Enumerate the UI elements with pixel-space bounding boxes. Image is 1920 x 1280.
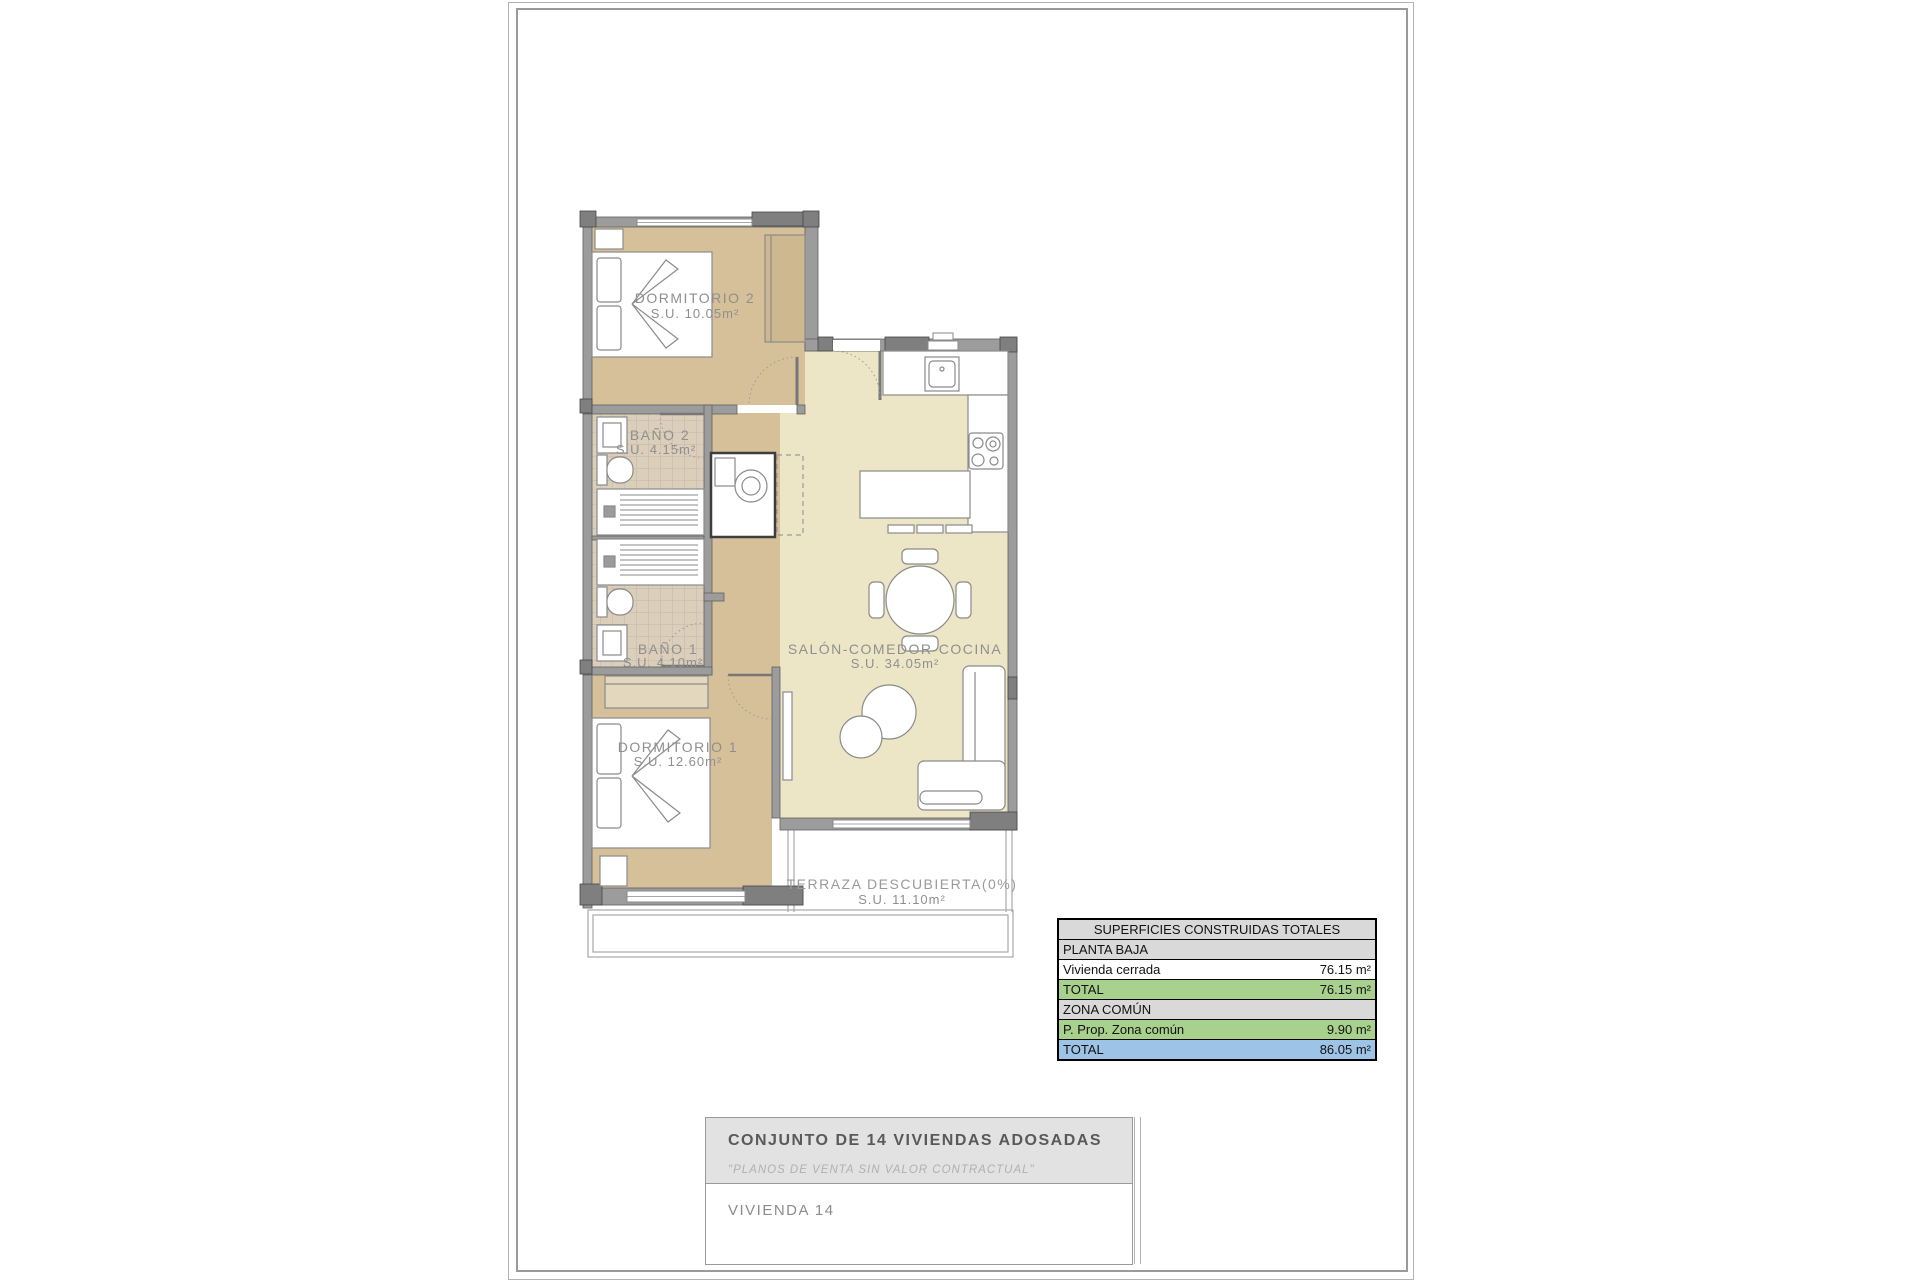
row-label: TOTAL xyxy=(1059,1040,1261,1059)
row-value xyxy=(1261,940,1375,959)
room-area-salon: S.U. 34.05m² xyxy=(851,656,940,671)
areas-table: SUPERFICIES CONSTRUIDAS TOTALES PLANTA B… xyxy=(1057,918,1377,1061)
window-kitchen xyxy=(928,341,958,350)
areas-table-title: SUPERFICIES CONSTRUIDAS TOTALES xyxy=(1059,920,1375,940)
row-value: 76.15 m² xyxy=(1261,960,1375,979)
project-title: CONJUNTO DE 14 VIVIENDAS ADOSADAS xyxy=(728,1132,1132,1150)
title-block-divider xyxy=(1134,1117,1141,1264)
table-row: TOTAL 76.15 m² xyxy=(1059,980,1375,1000)
row-label: TOTAL xyxy=(1059,980,1261,999)
row-label: ZONA COMÚN xyxy=(1059,1000,1261,1019)
row-label: PLANTA BAJA xyxy=(1059,940,1261,959)
wardrobe-dormitorio1 xyxy=(605,676,708,708)
table-row: TOTAL 86.05 m² xyxy=(1059,1040,1375,1059)
room-area-bano2: S.U. 4.15m² xyxy=(616,442,696,457)
room-label-salon: SALÓN-COMEDOR-COCINA xyxy=(788,641,1002,657)
table-row: P. Prop. Zona común 9.90 m² xyxy=(1059,1020,1375,1040)
row-label: P. Prop. Zona común xyxy=(1059,1020,1261,1039)
row-value: 76.15 m² xyxy=(1261,980,1375,999)
title-block-body: VIVIENDA 14 xyxy=(706,1184,1132,1219)
hob-icon xyxy=(969,433,1003,469)
table-row: PLANTA BAJA xyxy=(1059,940,1375,960)
unit-name: VIVIENDA 14 xyxy=(728,1202,1132,1219)
row-value: 9.90 m² xyxy=(1261,1020,1375,1039)
table-row: Vivienda cerrada 76.15 m² xyxy=(1059,960,1375,980)
pouf-small xyxy=(840,716,882,758)
entry-opening xyxy=(833,340,880,351)
room-area-terraza: S.U. 11.10m² xyxy=(858,892,946,907)
room-area-dormitorio2: S.U. 10.05m² xyxy=(651,306,740,321)
row-value: 86.05 m² xyxy=(1261,1040,1375,1059)
title-block: CONJUNTO DE 14 VIVIENDAS ADOSADAS "PLANO… xyxy=(705,1117,1133,1265)
row-label: Vivienda cerrada xyxy=(1059,960,1261,979)
room-area-bano1: S.U. 4.10m² xyxy=(623,655,703,670)
room-label-dormitorio2: DORMITORIO 2 xyxy=(635,290,755,306)
room-label-bano2: BAÑO 2 xyxy=(630,427,690,443)
room-label-dormitorio1: DORMITORIO 1 xyxy=(618,739,738,755)
tv-unit-salon xyxy=(783,692,792,780)
washer-closet xyxy=(711,453,775,537)
row-value xyxy=(1261,1000,1375,1019)
disclaimer-text: "PLANOS DE VENTA SIN VALOR CONTRACTUAL" xyxy=(728,1164,1132,1176)
plan-sheet: DORMITORIO 2 S.U. 10.05m² BAÑO 2 S.U. 4.… xyxy=(0,0,1920,1280)
table-row: ZONA COMÚN xyxy=(1059,1000,1375,1020)
room-label-terraza: TERRAZA DESCUBIERTA(0%) xyxy=(787,876,1018,892)
room-area-dormitorio1: S.U. 12.60m² xyxy=(634,754,723,769)
title-block-header: CONJUNTO DE 14 VIVIENDAS ADOSADAS "PLANO… xyxy=(706,1118,1132,1184)
floor-plan: DORMITORIO 2 S.U. 10.05m² BAÑO 2 S.U. 4.… xyxy=(0,0,1920,1280)
